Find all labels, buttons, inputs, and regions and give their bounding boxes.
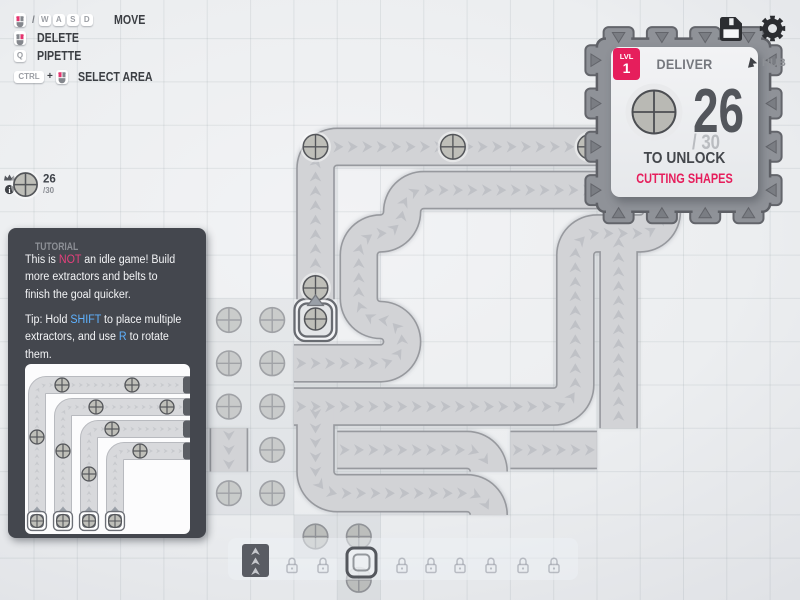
svg-text:26: 26 bbox=[43, 174, 56, 186]
svg-text:/30: /30 bbox=[43, 186, 55, 195]
